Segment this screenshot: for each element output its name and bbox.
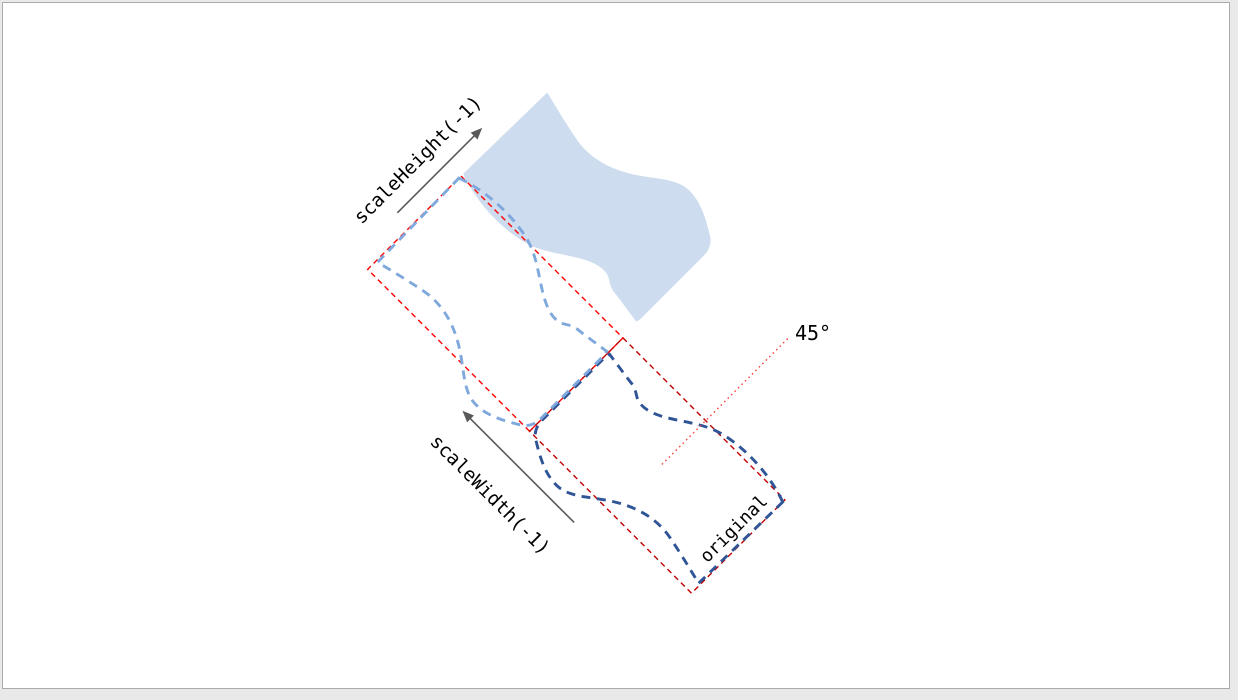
drawing-canvas: scaleHeight(-1) scaleWidth(-1) original …	[2, 2, 1230, 689]
angle-reference-dotted-line	[660, 339, 787, 466]
bounds-rect-original	[530, 338, 785, 593]
angle-label: 45°	[795, 321, 831, 345]
transform-diagram	[3, 3, 1231, 690]
wave-shape-original-outline	[517, 334, 789, 606]
